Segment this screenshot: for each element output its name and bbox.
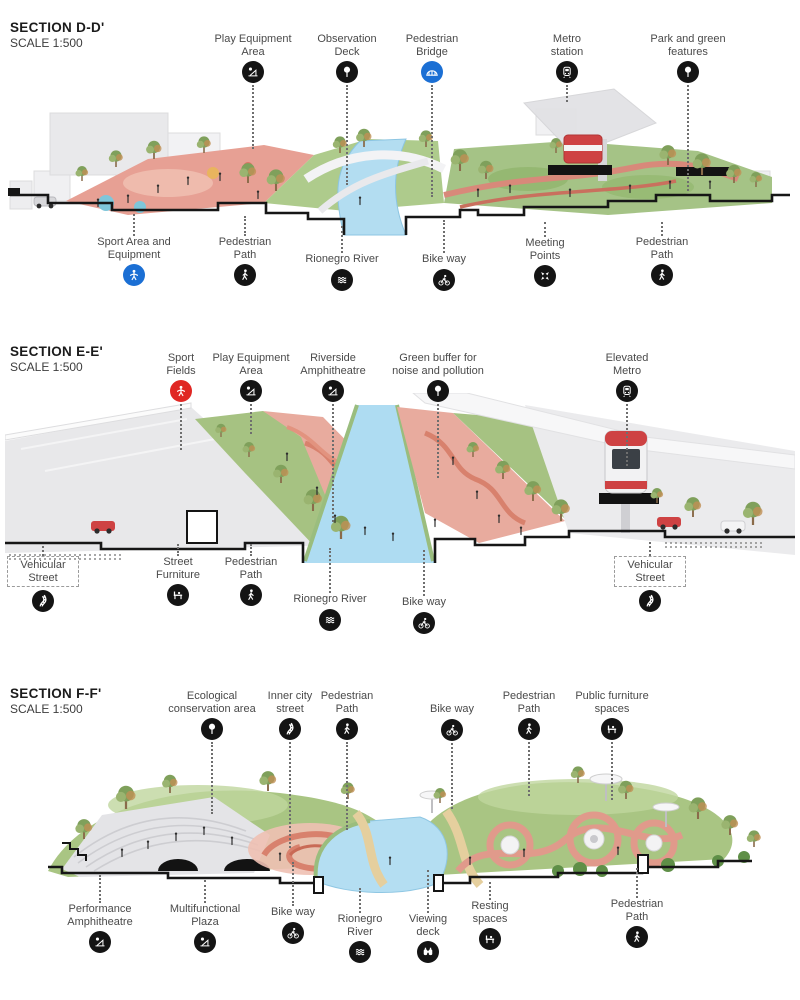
label-text: Ecologicalconservation area xyxy=(168,690,255,715)
label-text: Bike way xyxy=(271,906,315,919)
label-text: Bike way xyxy=(422,253,466,266)
page: { "palette": { "icon_black": "#141414", … xyxy=(0,0,800,1000)
section-scale: SCALE 1:500 xyxy=(10,702,102,716)
walk-icon xyxy=(336,718,358,740)
label-text: Bike way xyxy=(430,703,474,716)
label-text: PedestrianPath xyxy=(321,690,374,715)
label-text: ObservationDeck xyxy=(317,33,376,58)
label-text: MultifunctionalPlaza xyxy=(170,903,240,928)
label-text: Play EquipmentArea xyxy=(212,352,289,377)
label-text: Inner citystreet xyxy=(268,690,313,715)
bike-icon xyxy=(441,719,463,741)
label-text: PedestrianPath xyxy=(503,690,556,715)
label-text: Viewingdeck xyxy=(409,913,447,938)
label-text: Park and greenfeatures xyxy=(650,33,725,58)
walk-icon xyxy=(518,718,540,740)
label-text: Rionegro River xyxy=(305,253,378,266)
label-text: Play EquipmentArea xyxy=(214,33,291,58)
section-title: SECTION F-F' xyxy=(10,686,102,701)
car-road-icon xyxy=(279,718,301,740)
car-road-icon xyxy=(32,590,54,612)
tree-icon xyxy=(677,61,699,83)
waves-icon xyxy=(349,941,371,963)
section-dd-illustration xyxy=(8,83,792,241)
waves-icon xyxy=(331,269,353,291)
section-title: SECTION E-E' xyxy=(10,344,103,359)
callout-rionegro-river: RionegroRiver xyxy=(285,888,435,963)
waves-icon xyxy=(319,609,341,631)
tree-icon xyxy=(201,718,223,740)
walk-icon xyxy=(234,264,256,286)
section-scale: SCALE 1:500 xyxy=(10,36,105,50)
tree-icon xyxy=(336,61,358,83)
playground-icon xyxy=(194,931,216,953)
label-text: RionegroRiver xyxy=(338,913,383,938)
bridge-icon xyxy=(421,61,443,83)
walk-icon xyxy=(240,584,262,606)
sport-person-icon xyxy=(123,264,145,286)
bench-icon xyxy=(167,584,189,606)
walk-icon xyxy=(626,926,648,948)
section-dd-header: SECTION D-D' SCALE 1:500 xyxy=(10,20,105,50)
label-text: PedestrianBridge xyxy=(406,33,459,58)
label-text: Bike way xyxy=(402,596,446,609)
bike-icon xyxy=(433,269,455,291)
section-ff-illustration xyxy=(18,743,782,897)
section-scale: SCALE 1:500 xyxy=(10,360,103,374)
section-ff-header: SECTION F-F' SCALE 1:500 xyxy=(10,686,102,716)
label-text: ElevatedMetro xyxy=(606,352,649,377)
label-text: Green buffer fornoise and pollution xyxy=(392,352,484,377)
car-road-icon xyxy=(639,590,661,612)
label-text: PedestrianPath xyxy=(611,898,664,923)
label-text: Metrostation xyxy=(551,33,583,58)
binoculars-icon xyxy=(417,941,439,963)
bike-icon xyxy=(282,922,304,944)
bench-icon xyxy=(601,718,623,740)
walk-icon xyxy=(651,264,673,286)
label-text: Rionegro River xyxy=(293,593,366,606)
playground-icon xyxy=(242,61,264,83)
label-text: RiversideAmphitheatre xyxy=(300,352,365,377)
bike-icon xyxy=(413,612,435,634)
section-ee-illustration xyxy=(5,393,795,563)
label-text: Restingspaces xyxy=(471,900,508,925)
train-icon xyxy=(556,61,578,83)
label-text: Public furniturespaces xyxy=(575,690,648,715)
label-text: SportFields xyxy=(166,352,195,377)
section-title: SECTION D-D' xyxy=(10,20,105,35)
section-ee-header: SECTION E-E' SCALE 1:500 xyxy=(10,344,103,374)
meeting-icon xyxy=(534,265,556,287)
playground-icon xyxy=(89,931,111,953)
label-text: PerformanceAmphitheatre xyxy=(67,903,132,928)
bench-icon xyxy=(479,928,501,950)
